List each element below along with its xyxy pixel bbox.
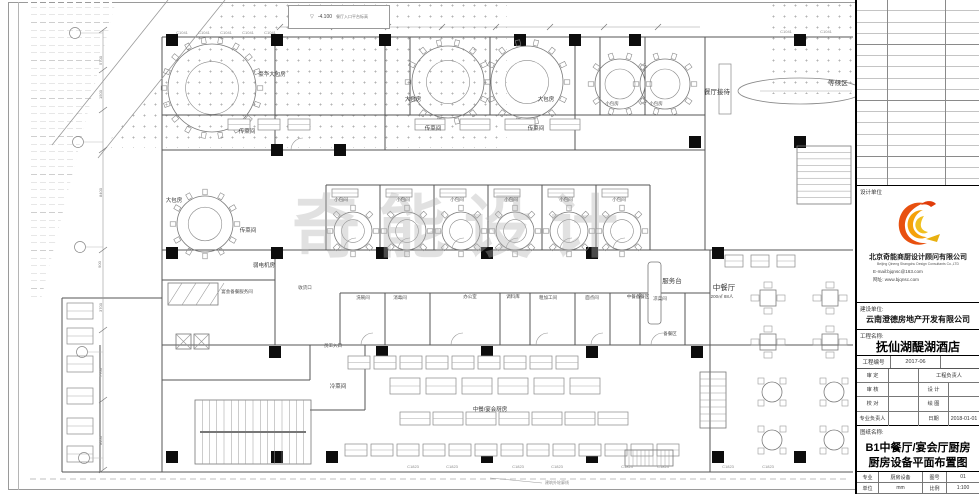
chair (387, 211, 394, 218)
chair (185, 126, 192, 133)
chair (842, 378, 848, 384)
chair (469, 47, 476, 54)
design-company-name: 北京奇能商厨设计顾问有限公司 (857, 252, 979, 262)
chair (351, 251, 355, 257)
chair (826, 326, 834, 332)
chair (820, 426, 826, 432)
chair (201, 38, 206, 44)
room-label: 粗加工间 (539, 295, 557, 301)
column-marker (794, 451, 806, 463)
hatch-line (182, 283, 196, 305)
client-section: 建设单位: 云南澄德房地产开发有限公司 (857, 303, 979, 330)
chair (436, 40, 442, 46)
chair (420, 47, 427, 54)
chair (257, 86, 263, 90)
chair (172, 54, 179, 61)
chair (533, 40, 539, 46)
chair (813, 295, 821, 301)
chair (548, 47, 555, 54)
date-value: 2018-01-01 (949, 412, 979, 426)
chair (751, 295, 759, 301)
chair (203, 253, 207, 259)
project-no-value: 2017-06 (891, 356, 941, 368)
chair (642, 229, 648, 233)
chair (229, 205, 236, 212)
column-marker (326, 451, 338, 463)
chair (764, 308, 772, 314)
round-table (603, 212, 641, 250)
floor-plan: 奇能设计 豪华大包房 大包房 大包房 小包房 小包房 餐厅接待 等候区 传菜间 … (0, 0, 855, 494)
signature-grid: 审 定 工程负责人 审 核 设 计 校 对 绘 图 专业负责人 日期 2018- (857, 369, 979, 426)
door-arc (591, 333, 603, 345)
room-label: 消毒间 (393, 295, 407, 301)
approve-label: 审 定 (857, 369, 889, 382)
room-label: 冷菜间 (330, 382, 347, 390)
round-table (762, 430, 782, 450)
entry-label: 员工入口 (324, 343, 342, 349)
chair (420, 211, 427, 218)
chair (487, 96, 494, 102)
sheet-meta: 专业 厨房设备 图号 01 单位 mm 比例 1:100 (857, 472, 979, 494)
chair (327, 229, 333, 233)
chair (777, 295, 785, 301)
chair (596, 229, 602, 233)
chair (233, 43, 240, 50)
square-table (822, 290, 838, 306)
room-label: 小包房 (605, 101, 619, 107)
approve-value (889, 369, 919, 382)
chair (535, 229, 541, 233)
chair (758, 448, 764, 454)
chair (820, 378, 826, 384)
chair (780, 448, 786, 454)
window-code: C1823 (657, 464, 669, 469)
sheet-name-label: 图纸名称: (860, 428, 884, 436)
window-code: C1823 (722, 464, 734, 469)
chair (203, 189, 207, 195)
chair (351, 205, 355, 211)
dimension-value: 900 (97, 261, 102, 268)
room-label: 小包间 (612, 197, 626, 203)
chair (560, 61, 567, 67)
chair (608, 108, 614, 115)
chair (481, 229, 487, 233)
chair (218, 38, 223, 44)
elevation-value: -4.100 (318, 14, 332, 20)
chair (588, 82, 594, 86)
round-table (640, 59, 690, 109)
chair (474, 211, 481, 218)
column-marker (166, 34, 178, 46)
chair (780, 378, 786, 384)
column-marker (712, 247, 724, 259)
chair (543, 229, 549, 233)
unit-value: mm (879, 483, 923, 493)
design-label: 设 计 (919, 383, 949, 396)
round-table (491, 46, 563, 118)
major-label: 专业 (857, 472, 879, 482)
revision-table-divider (945, 0, 946, 185)
chair (218, 248, 225, 255)
chair (495, 211, 502, 218)
chair (820, 448, 826, 454)
room-label: 传菜间 (528, 124, 545, 132)
chair (218, 132, 223, 138)
room-label: 备餐区 (663, 331, 677, 337)
chair (826, 282, 834, 288)
chair (839, 339, 847, 345)
round-table-inner (342, 220, 365, 243)
room-capacity: 200㎡ 88人 (711, 294, 734, 300)
chair (459, 251, 463, 257)
major-value: 厨房设备 (879, 472, 923, 482)
chair (548, 110, 555, 117)
chair (459, 205, 463, 211)
door-arc (536, 333, 548, 345)
chair (593, 64, 600, 71)
chair (691, 82, 697, 86)
chair (499, 110, 506, 117)
chair (653, 108, 659, 115)
chair (487, 61, 494, 67)
chair (469, 110, 476, 117)
design-company-website: 网址: www.bjqnsc.com (873, 277, 919, 283)
chair (560, 96, 567, 102)
window-code: C1041 (220, 30, 232, 35)
column-marker (271, 451, 283, 463)
column-marker (629, 34, 641, 46)
chair (405, 251, 409, 257)
revision-table-divider (887, 0, 888, 185)
sheet-title-line2: 厨房设备平面布置图 (857, 454, 979, 470)
client-label: 建设单位: (860, 305, 884, 313)
window-code: C1041 (780, 29, 792, 34)
design-unit-section: 设计单位 北京奇能商厨设计顾问有限公司 Beijing Qineng Shang… (857, 186, 979, 303)
room-label: 凉菜间 (653, 296, 667, 302)
dimension-value: 8400 (98, 436, 103, 445)
chair (620, 251, 624, 257)
chair (549, 211, 556, 218)
window-code: C1823 (621, 464, 633, 469)
window-code: C1041 (264, 30, 276, 35)
room-label: 调料库 (506, 294, 520, 300)
chair (481, 96, 488, 102)
chair (366, 211, 373, 218)
door-arc (451, 333, 463, 345)
room-label: 服务台 (662, 275, 682, 285)
chair (201, 132, 206, 138)
dimension-value: 5700 (98, 56, 103, 65)
check-label: 审 核 (857, 383, 889, 396)
column-marker (586, 346, 598, 358)
chair (528, 211, 535, 218)
column-marker (712, 451, 724, 463)
date-label: 日期 (919, 412, 949, 426)
dimension-value: 8400 (98, 188, 103, 197)
chair (218, 193, 225, 200)
column-marker (481, 247, 493, 259)
room-label: 宴会备餐服务间 (221, 289, 253, 295)
grid-bubble (75, 242, 86, 253)
chair (172, 115, 179, 122)
door-arc (651, 333, 663, 345)
sheet-name-section: 图纸名称: B1中餐厅/宴会厅厨房 厨房设备平面布置图 (857, 426, 979, 472)
floor-plan-linework (0, 0, 855, 494)
chair (441, 211, 448, 218)
staircase (797, 146, 851, 204)
grid-bubble (70, 28, 81, 39)
column-marker (376, 247, 388, 259)
chair (751, 339, 759, 345)
round-table-inner (426, 60, 469, 103)
chair (245, 54, 252, 61)
chair (842, 426, 848, 432)
window-code: C1823 (551, 464, 563, 469)
round-table-inner (188, 207, 222, 241)
chair (780, 400, 786, 406)
room-label: 弱电机房 (253, 261, 275, 269)
column-marker (514, 34, 526, 46)
round-table-inner (611, 220, 634, 243)
round-table (762, 382, 782, 402)
project-no-row: 工程编号 2017-06 (857, 356, 979, 369)
column-marker (269, 346, 281, 358)
chair (780, 426, 786, 432)
chair (427, 229, 433, 233)
boundary-note: 建筑外轮廓线 (545, 480, 569, 486)
elevation-note: ▽ -4.100 餐厅入口平台标高 (288, 5, 390, 29)
column-marker (166, 451, 178, 463)
draw-value (949, 397, 979, 410)
chair (489, 229, 495, 233)
chair (626, 108, 632, 115)
draw-label: 绘 图 (919, 397, 949, 410)
chair (567, 205, 571, 211)
round-table-inner (504, 220, 527, 243)
round-table-inner (186, 62, 239, 115)
title-block: 设计单位 北京奇能商厨设计顾问有限公司 Beijing Qineng Shang… (855, 0, 979, 494)
chair (671, 53, 677, 60)
chair (229, 237, 236, 244)
drawing-sheet: 奇能设计 豪华大包房 大包房 大包房 小包房 小包房 餐厅接待 等候区 传菜间 … (0, 0, 979, 494)
column-marker (569, 34, 581, 46)
hatch-line (168, 283, 182, 305)
unit-label: 单位 (857, 483, 879, 493)
chair (513, 251, 517, 257)
window-code: C1823 (407, 464, 419, 469)
pm-label: 工程负责人 (919, 369, 979, 382)
chair (826, 308, 834, 314)
design-value (949, 383, 979, 396)
chair (635, 211, 642, 218)
square-table (760, 290, 776, 306)
chair (813, 339, 821, 345)
room-label: 面点间 (585, 295, 599, 301)
dimension-value: 1500 (98, 90, 103, 99)
design-company-email: E-mail:bjqnsc@163.com (873, 269, 923, 274)
window-code: C1041 (820, 29, 832, 34)
chair (170, 222, 176, 226)
round-table (824, 382, 844, 402)
chair (626, 53, 632, 60)
chair (564, 80, 570, 84)
room-label: 餐厅接待 (704, 86, 730, 96)
column-marker (794, 34, 806, 46)
round-table (442, 212, 480, 250)
chair (758, 378, 764, 384)
chair (593, 98, 600, 105)
round-table (334, 212, 372, 250)
round-table (177, 196, 233, 252)
chair (373, 229, 379, 233)
chair (186, 248, 193, 255)
room-label: 中餐/宴会厨房 (473, 405, 508, 413)
chair (608, 53, 614, 60)
chair (481, 61, 488, 67)
client-name: 云南澄德房地产开发有限公司 (857, 314, 979, 325)
round-table-inner (450, 220, 473, 243)
room-label: 中餐厅 (713, 282, 736, 293)
room-label: 办公室 (463, 294, 477, 300)
chair (582, 211, 589, 218)
chair (685, 64, 692, 71)
room-label: 传菜间 (425, 124, 442, 132)
chair (333, 211, 340, 218)
chair (174, 237, 181, 244)
project-no-spare (941, 356, 979, 368)
column-marker (166, 247, 178, 259)
room-label: 中餐备餐区 (627, 294, 650, 300)
room-label: 等候区 (828, 77, 848, 87)
chair (685, 98, 692, 105)
chair (758, 400, 764, 406)
chair (174, 205, 181, 212)
design-unit-label: 设计单位 (860, 188, 882, 196)
chair (454, 40, 460, 46)
project-no-label: 工程编号 (857, 356, 891, 368)
room-label: 传菜间 (239, 127, 256, 135)
grid-bubble (73, 137, 84, 148)
chair (454, 118, 460, 124)
chair (777, 339, 785, 345)
service-desk (648, 262, 661, 324)
door-arc (291, 138, 303, 150)
round-table (550, 212, 588, 250)
chair (186, 193, 193, 200)
square-table (760, 334, 776, 350)
room-label: 传菜间 (240, 226, 257, 234)
entry-label: 收货口 (298, 285, 312, 291)
chair (820, 400, 826, 406)
column-marker (379, 34, 391, 46)
chair (839, 295, 847, 301)
window-code: C1041 (242, 30, 254, 35)
chair (646, 82, 652, 86)
room-label: 小包房 (649, 101, 663, 107)
room-label: 小包间 (396, 197, 410, 203)
column-marker (689, 136, 701, 148)
elevation-label: 餐厅入口平台标高 (336, 14, 368, 20)
room-label: 大包房 (538, 95, 555, 103)
window-code: C1823 (512, 464, 524, 469)
square-table (822, 334, 838, 350)
room-label: 大包房 (405, 95, 422, 103)
chair (653, 53, 659, 60)
chair (633, 82, 639, 86)
design-company-name-en: Beijing Qineng Shangchu Design Consultan… (857, 262, 979, 266)
chair (826, 352, 834, 358)
chair (842, 448, 848, 454)
company-logo (893, 199, 943, 249)
column-marker (334, 144, 346, 156)
chair (164, 101, 171, 107)
column-marker (271, 144, 283, 156)
chair (764, 282, 772, 288)
revision-table (857, 0, 979, 186)
chair (567, 251, 571, 257)
discipline-lead-label: 专业负责人 (857, 412, 889, 426)
room-label: 小包间 (450, 197, 464, 203)
chair (671, 108, 677, 115)
chair (764, 352, 772, 358)
chair (589, 229, 595, 233)
column-marker (691, 346, 703, 358)
room-label: 小包间 (559, 197, 573, 203)
chair (764, 326, 772, 332)
round-table-inner (558, 220, 581, 243)
dimension-value: 3700 (98, 303, 103, 312)
room-label: 大包房 (166, 196, 183, 204)
window-code: C1823 (762, 464, 774, 469)
proof-value (889, 397, 919, 410)
chair (513, 205, 517, 211)
room-label: 小包间 (334, 197, 348, 203)
proof-label: 校 对 (857, 397, 889, 410)
discipline-lead-value (889, 412, 919, 426)
room-label: 洗碗间 (356, 295, 370, 301)
round-table-inner (396, 220, 419, 243)
window-code: C1041 (198, 30, 210, 35)
check-value (889, 383, 919, 396)
elevation-symbol: ▽ (310, 14, 314, 20)
room-label: 豪华大包房 (258, 70, 286, 78)
chair (420, 110, 427, 117)
chair (620, 205, 624, 211)
room-label: 小包间 (504, 197, 518, 203)
window-code: C1041 (176, 30, 188, 35)
chair (758, 426, 764, 432)
chair (381, 229, 387, 233)
column-marker (271, 34, 283, 46)
chair (254, 101, 261, 107)
chair (499, 47, 506, 54)
sheet-no-label: 图号 (923, 472, 947, 482)
project-name: 抚仙湖醍湖酒店 (857, 338, 979, 355)
round-table (412, 46, 484, 118)
round-table (388, 212, 426, 250)
round-table (496, 212, 534, 250)
scale-value: 1:100 (947, 483, 979, 493)
chair (602, 211, 609, 218)
site-boundary-line (52, 0, 168, 145)
chair (435, 229, 441, 233)
round-table-inner (650, 69, 680, 99)
scale-label: 比例 (923, 483, 947, 493)
sheet-title-line1: B1中餐厅/宴会厅厨房 (857, 439, 979, 455)
hatched-area (168, 283, 218, 305)
hatch-line (196, 283, 210, 305)
project-section: 工程名称: 抚仙湖醍湖酒店 (857, 330, 979, 356)
